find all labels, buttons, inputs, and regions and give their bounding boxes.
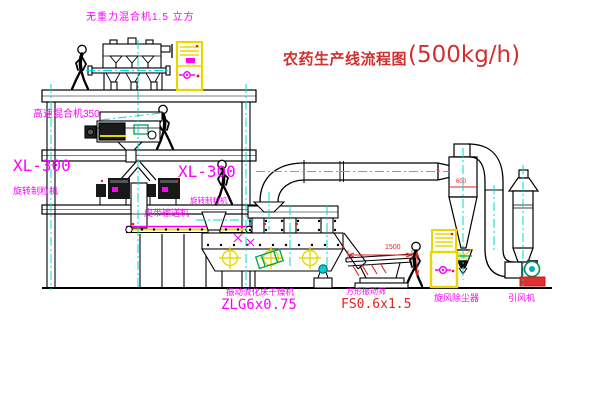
induced-draft-fan [520, 260, 545, 286]
person-ground [406, 242, 422, 286]
person-top-floor [72, 45, 88, 89]
control-cabinet-bottom [431, 230, 457, 287]
label-cyclone: 旋风除尘器 [434, 294, 479, 303]
flow-diagram: 农药生产线流程图(500kg/h) 无重力混合机1.5 立方 高速混合机350 … [0, 0, 600, 403]
control-cabinet-top [177, 42, 202, 90]
title-capacity: (500kg/h) [408, 45, 520, 67]
dim-sieve-length: 1500 [385, 244, 401, 251]
label-dryer-name: 振动流化床干燥机 [226, 288, 294, 297]
title-text: 农药生产线流程图 [283, 52, 407, 67]
main-duct [254, 160, 451, 212]
diagram-title: 农药生产线流程图(500kg/h) [283, 45, 520, 67]
label-gravity-free-mixer: 无重力混合机1.5 立方 [86, 13, 195, 23]
granulator-left [96, 178, 130, 205]
label-granulator-left-model: XL-300 [13, 158, 71, 174]
gravity-free-mixer [88, 38, 172, 90]
discharge-column [131, 183, 147, 228]
label-belt-conveyor: 皮带输送机 [144, 209, 189, 218]
granulator-right [146, 178, 180, 205]
label-sieve-model: FS0.6x1.5 [341, 298, 411, 311]
label-granulator-left-name: 旋转制粒机 [13, 187, 58, 196]
fluid-bed-dryer [202, 206, 366, 288]
label-dryer-model: ZLG6x0.75 [221, 298, 297, 312]
square-sieve [346, 254, 414, 288]
dimension-lines [348, 250, 419, 276]
label-high-speed-mixer: 高速混合机350 [33, 110, 100, 120]
label-granulator-right-name: 旋转制粒机 [190, 197, 228, 205]
label-granulator-right-model: XL-300 [178, 164, 236, 180]
dim-cyclone-marker: 600 [456, 179, 466, 185]
label-fan: 引风机 [508, 294, 535, 303]
label-sieve-name: 方形振动筛 [346, 288, 386, 296]
